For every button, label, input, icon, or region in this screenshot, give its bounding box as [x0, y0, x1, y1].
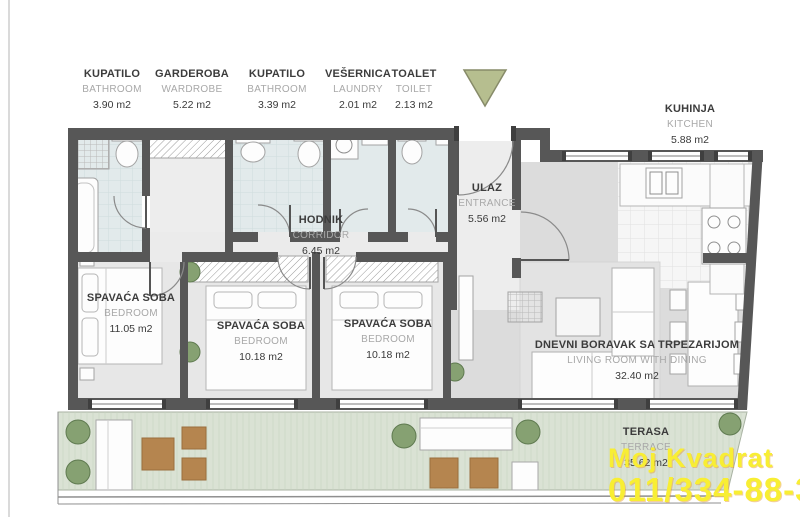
floor-plan-sheet: KUPATILO BATHROOM 3.90 m2 GARDEROBA WARD… [0, 0, 800, 517]
sofa-seat [532, 352, 654, 400]
terrace-sofa [96, 420, 132, 490]
terrace-door-window [646, 399, 738, 409]
wall-entrance-right [512, 258, 521, 278]
wall-bedroom1-bedroom2 [180, 262, 188, 398]
terrace-bench [420, 418, 512, 450]
terrace-railing-line [58, 503, 721, 504]
floor-plan-drawing [0, 0, 800, 517]
wall-bathroom1-right [142, 128, 150, 262]
wall-bedroom2-top [188, 252, 278, 262]
kitchen-window [648, 151, 704, 161]
plant [392, 424, 416, 448]
wall-corridor-top [290, 232, 340, 242]
pillow [82, 274, 98, 312]
terrace-ottoman-wood [470, 458, 498, 488]
wall-left [68, 128, 78, 410]
kitchen-window [562, 151, 632, 161]
terrace-ottoman-wood [430, 458, 458, 488]
window [206, 399, 298, 409]
terrace-chair-wood [182, 427, 206, 449]
toilet-bowl [298, 141, 320, 167]
kitchen-window [714, 151, 752, 161]
wall-bedroom3-top [356, 252, 443, 262]
wall-laundry-right [388, 128, 396, 242]
plant [66, 460, 90, 484]
dining-table [688, 282, 738, 386]
wall-corridor-top [233, 232, 258, 242]
pillow [214, 292, 252, 308]
wall-kitchen-living [703, 253, 753, 263]
window [88, 399, 166, 409]
coffee-table [556, 298, 600, 336]
pillow [384, 292, 422, 308]
toilet-bowl [402, 140, 422, 164]
pillow [82, 318, 98, 356]
pillow [258, 292, 296, 308]
wall-bedroom1-top [182, 252, 188, 262]
wall-bedroom1-top [68, 252, 150, 262]
wall-bathroom2-right [323, 128, 331, 242]
window [336, 399, 428, 409]
toilet-bowl [116, 141, 138, 167]
wall-bedroom2-bedroom3 [312, 252, 320, 398]
pillow [340, 292, 378, 308]
dining-chair [670, 322, 686, 342]
terrace-side-table [512, 462, 538, 490]
terrace-chair-wood [182, 458, 206, 480]
plant [719, 413, 741, 435]
terrace-door-window [518, 399, 618, 409]
tv-unit [459, 276, 473, 360]
dining-chair [670, 290, 686, 310]
side-table [508, 292, 542, 322]
wall-entrance-right [512, 140, 521, 210]
terrace-railing-line [58, 496, 724, 497]
terrace-table-wood [142, 438, 174, 470]
wall-bedroom3-living [443, 252, 451, 398]
plant [516, 420, 540, 444]
dining-chair [670, 354, 686, 374]
nightstand [80, 368, 94, 380]
wall-wardrobe-right [225, 128, 233, 252]
north-arrow-icon [464, 70, 506, 106]
plant [66, 420, 90, 444]
sink-basin [241, 142, 265, 162]
